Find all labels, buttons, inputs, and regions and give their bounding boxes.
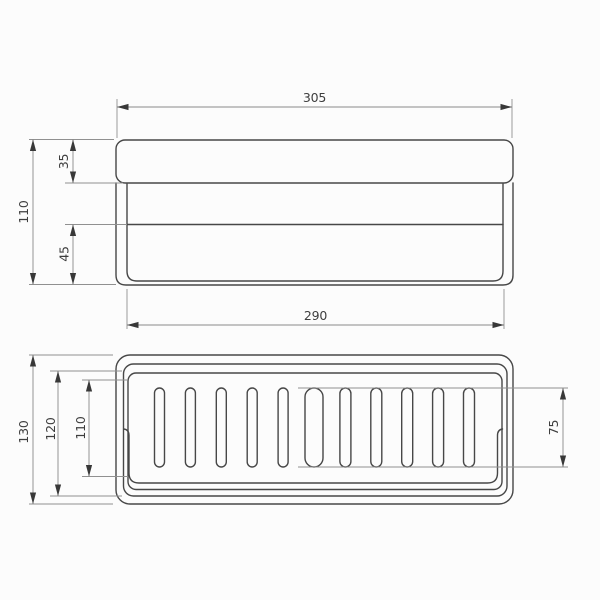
dim-rail-height-label: 35 — [56, 154, 71, 170]
top-outer-rim — [116, 355, 513, 504]
dim-inner-width-label: 290 — [304, 308, 328, 323]
front-dimensions: 305 110 35 45 290 — [16, 90, 512, 329]
drain-slot — [433, 388, 444, 467]
drain-slot — [185, 388, 195, 467]
drawing-sheet: 305 110 35 45 290 — [0, 0, 600, 600]
dim-slot-length-label: 75 — [546, 420, 561, 436]
dim-rail-height: 35 — [56, 140, 123, 184]
dim-outer-basket-depth-label: 120 — [43, 417, 58, 441]
drain-slot — [216, 388, 226, 467]
dim-overall-width-label: 305 — [303, 90, 326, 105]
top-mid-rim — [124, 364, 508, 496]
front-top-rail — [116, 140, 513, 183]
front-view — [116, 140, 513, 285]
dim-overall-depth-label: 130 — [16, 420, 31, 444]
dim-overall-depth: 130 — [16, 355, 113, 504]
drain-slot — [340, 388, 351, 467]
drain-slot — [155, 388, 165, 467]
drain-slot — [371, 388, 382, 467]
dim-inner-basket-depth-label: 110 — [73, 416, 88, 440]
dim-overall-width: 305 — [117, 90, 512, 138]
drain-slots — [155, 388, 475, 467]
top-basket-floor-outline — [124, 429, 503, 483]
front-body-inner-wall — [127, 184, 503, 281]
dim-inner-basket-depth: 110 — [73, 380, 128, 477]
dim-lower-section-height-label: 45 — [57, 246, 72, 262]
dim-inner-width: 290 — [127, 289, 504, 329]
drain-slot — [305, 388, 323, 467]
drain-slot — [247, 388, 257, 467]
top-inner-rim — [128, 373, 502, 490]
top-view — [116, 355, 513, 504]
top-dimensions: 130 120 110 75 — [16, 355, 568, 504]
drain-slot — [402, 388, 413, 467]
drain-slot — [464, 388, 475, 467]
front-body-outer-wall — [116, 183, 513, 285]
dim-overall-height-label: 110 — [16, 200, 31, 224]
technical-drawing-canvas: 305 110 35 45 290 — [0, 0, 600, 600]
drain-slot — [278, 388, 288, 467]
